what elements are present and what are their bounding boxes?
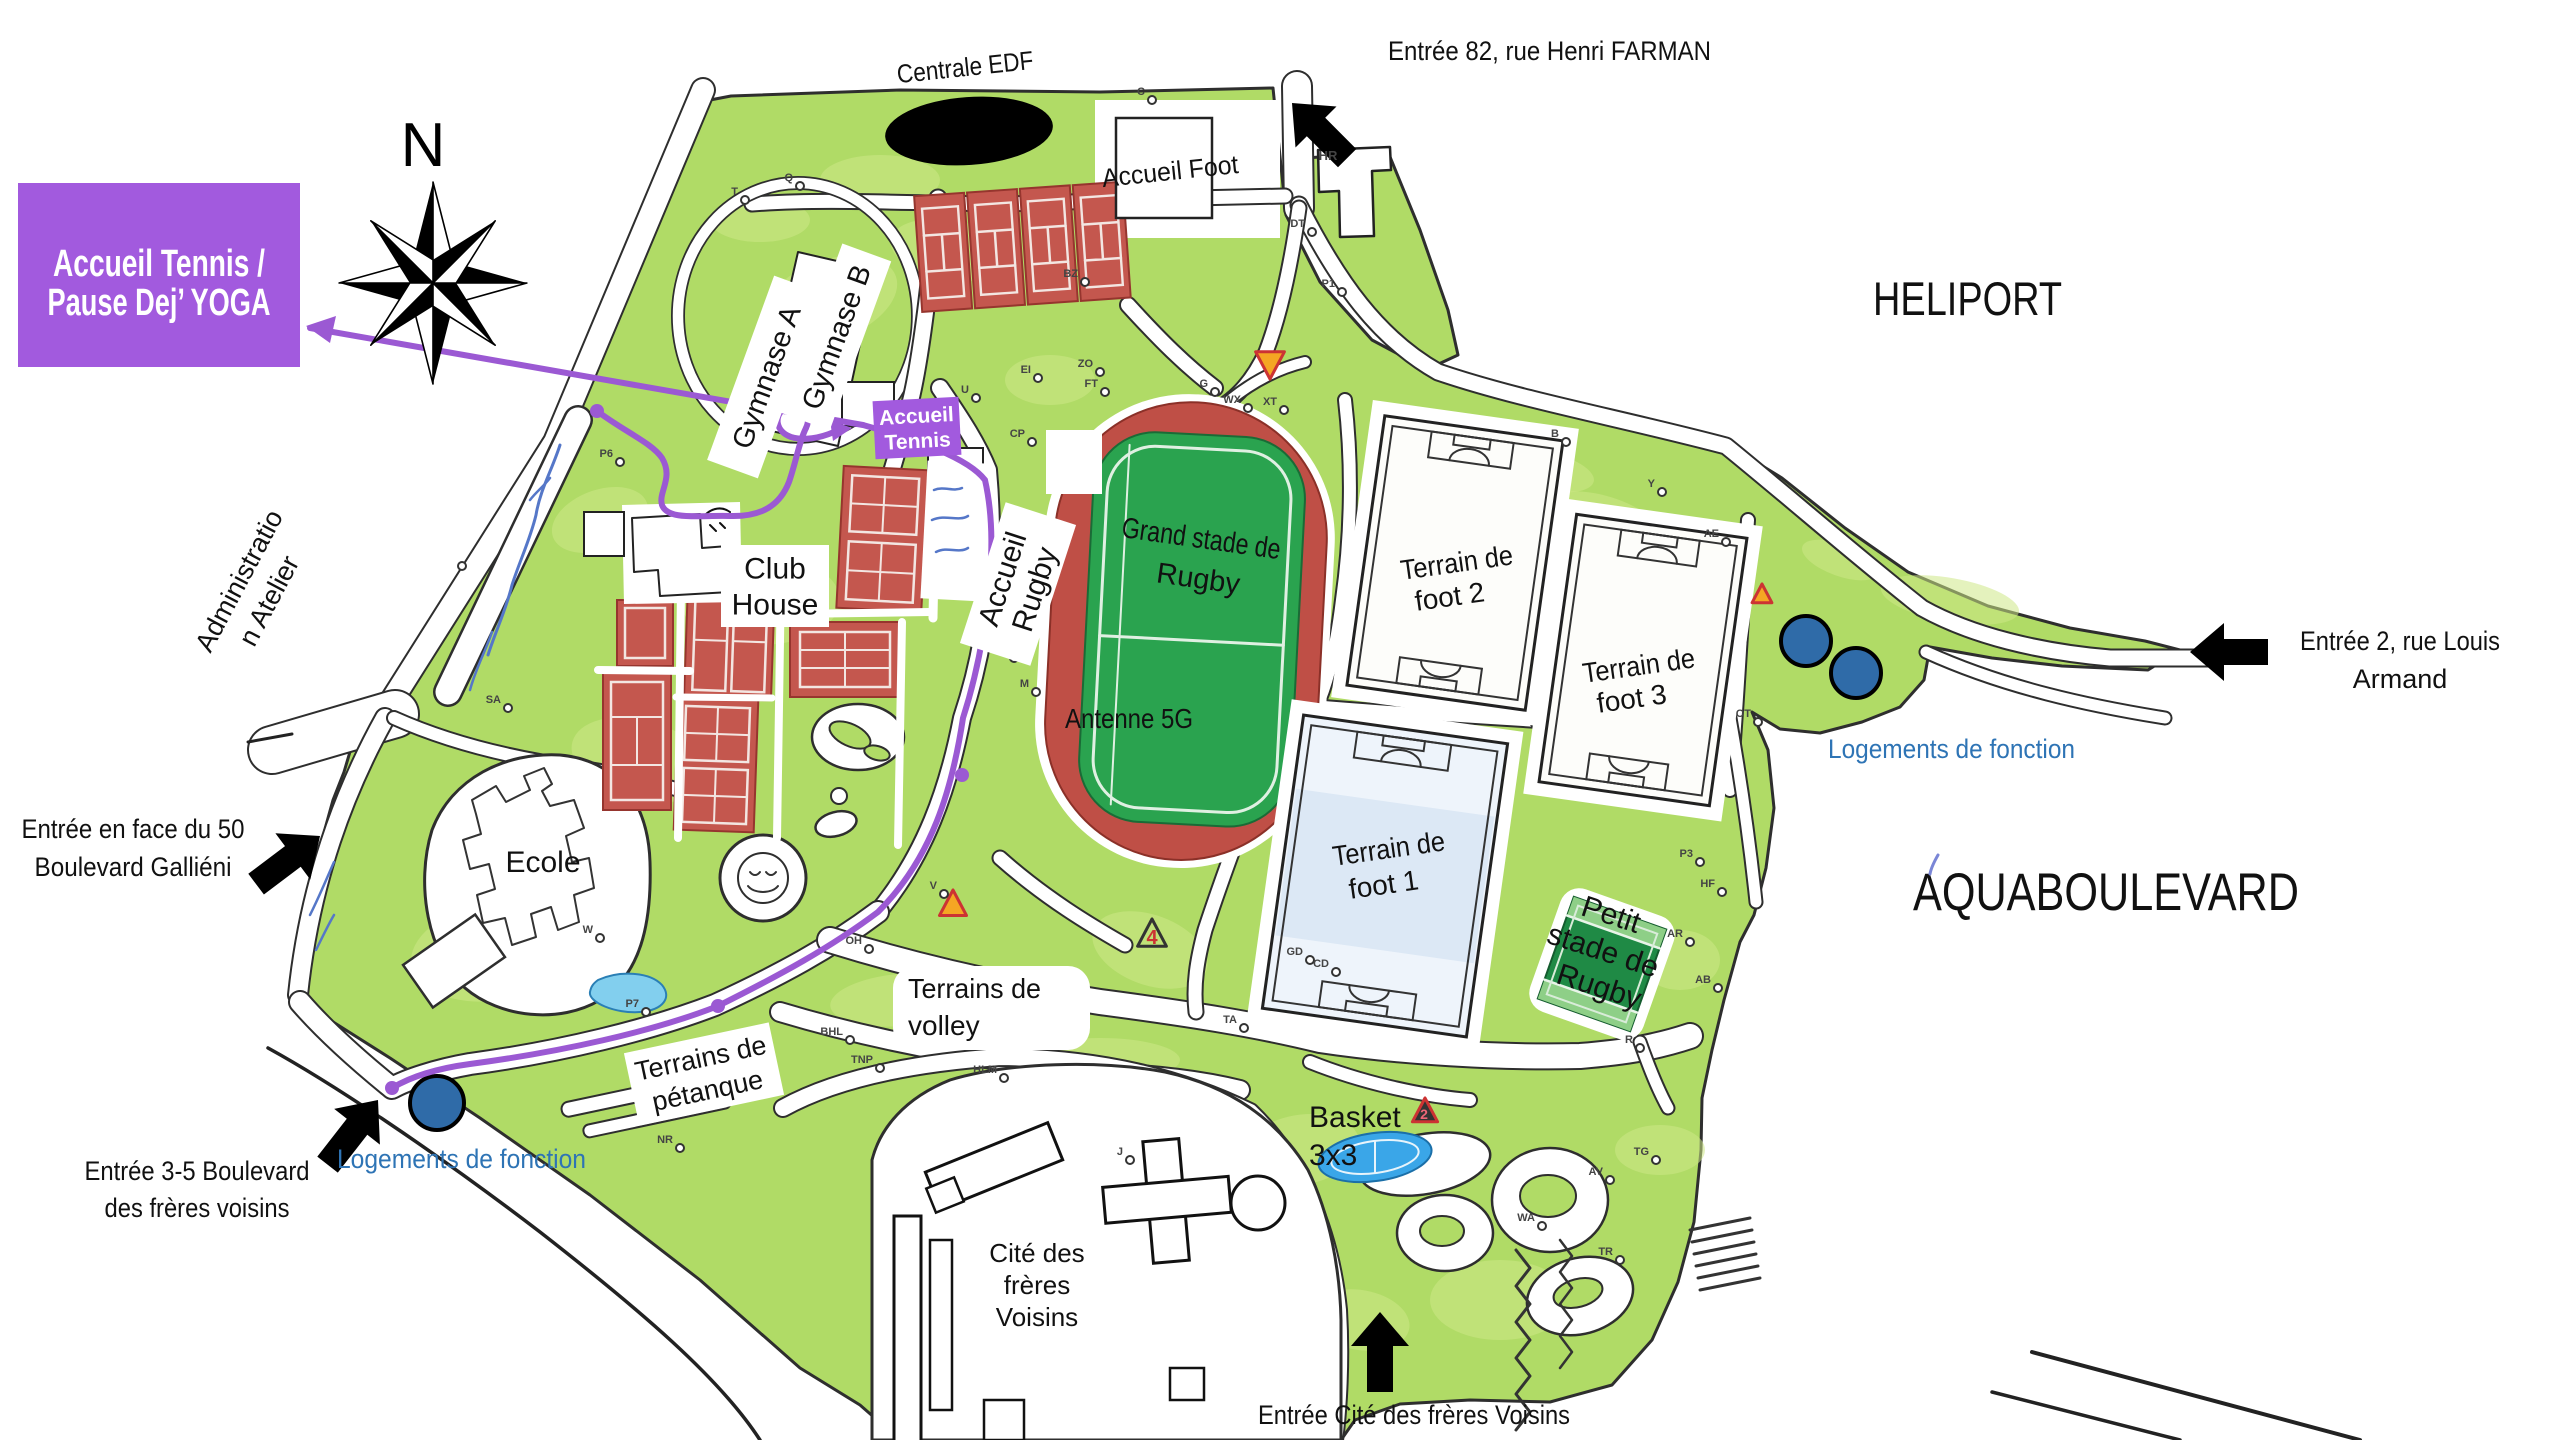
svg-text:Terrains de: Terrains de: [908, 973, 1041, 1004]
svg-text:AR: AR: [1667, 928, 1683, 940]
svg-text:U: U: [961, 384, 969, 396]
svg-text:Y: Y: [1648, 478, 1656, 490]
svg-text:Q: Q: [784, 172, 793, 184]
svg-text:R: R: [1625, 1034, 1633, 1046]
svg-text:CP: CP: [1010, 428, 1025, 440]
svg-text:TNP: TNP: [851, 1054, 873, 1066]
svg-text:P1: P1: [1322, 278, 1335, 290]
svg-text:Logements de fonction: Logements de fonction: [337, 1144, 586, 1174]
svg-text:Tennis: Tennis: [884, 428, 951, 454]
svg-text:Entrée 3-5 Boulevard: Entrée 3-5 Boulevard: [85, 1156, 310, 1186]
svg-text:volley: volley: [908, 1010, 980, 1041]
svg-text:House: House: [732, 589, 819, 622]
svg-text:AE: AE: [1704, 528, 1719, 540]
svg-text:Boulevard Galliéni: Boulevard Galliéni: [35, 852, 232, 882]
svg-text:TA: TA: [1223, 1014, 1237, 1026]
svg-text:Accueil Tennis /: Accueil Tennis /: [53, 243, 265, 285]
svg-text:TR: TR: [1598, 1246, 1613, 1258]
svg-text:Logements de fonction: Logements de fonction: [1828, 734, 2075, 764]
svg-text:AQUABOULEVARD: AQUABOULEVARD: [1913, 863, 2299, 922]
svg-text:TG: TG: [1634, 1146, 1649, 1158]
svg-text:Entrée en face du 50: Entrée en face du 50: [22, 814, 245, 844]
svg-text:WA: WA: [1517, 1212, 1535, 1224]
svg-text:4: 4: [1146, 927, 1158, 949]
svg-text:Armand: Armand: [2353, 664, 2448, 694]
svg-text:NR: NR: [657, 1134, 673, 1146]
svg-text:B: B: [1551, 428, 1559, 440]
svg-text:BZ: BZ: [1063, 268, 1078, 280]
svg-text:Ecole: Ecole: [505, 846, 580, 879]
svg-text:Entrée Cité des frères Voisins: Entrée Cité des frères Voisins: [1258, 1400, 1570, 1430]
svg-text:V: V: [930, 880, 938, 892]
svg-text:AV: AV: [1589, 1166, 1604, 1178]
svg-text:HR: HR: [1319, 148, 1338, 163]
svg-text:T: T: [731, 186, 738, 198]
svg-text:WX: WX: [1223, 394, 1241, 406]
svg-text:2: 2: [1420, 1106, 1428, 1122]
svg-text:GD: GD: [1287, 946, 1304, 958]
svg-text:Accueil: Accueil: [878, 403, 954, 430]
svg-text:Cité des: Cité des: [989, 1238, 1084, 1268]
svg-text:FT: FT: [1085, 378, 1099, 390]
svg-text:des frères voisins: des frères voisins: [105, 1193, 290, 1223]
svg-text:AB: AB: [1695, 974, 1711, 986]
svg-text:XT: XT: [1263, 396, 1277, 408]
svg-text:3x3: 3x3: [1309, 1139, 1357, 1172]
svg-text:HLM: HLM: [973, 1064, 997, 1076]
svg-text:Pause Dej’ YOGA: Pause Dej’ YOGA: [48, 282, 271, 324]
svg-text:HELIPORT: HELIPORT: [1873, 272, 2062, 325]
svg-text:OT: OT: [1736, 708, 1752, 720]
svg-text:EI: EI: [1021, 364, 1031, 376]
svg-text:Club: Club: [744, 553, 806, 586]
svg-text:CD: CD: [1313, 958, 1329, 970]
svg-text:DT: DT: [1290, 218, 1305, 230]
svg-text:Entrée 82, rue Henri FARMAN: Entrée 82, rue Henri FARMAN: [1388, 36, 1711, 66]
svg-text:ZO: ZO: [1078, 358, 1094, 370]
svg-text:G: G: [1199, 378, 1208, 390]
svg-text:BHL: BHL: [820, 1026, 843, 1038]
svg-text:Antenne 5G: Antenne 5G: [1065, 703, 1193, 734]
svg-text:J: J: [1117, 1146, 1123, 1158]
svg-text:Basket: Basket: [1309, 1101, 1401, 1134]
svg-text:SA: SA: [486, 694, 501, 706]
svg-text:N: N: [401, 111, 446, 180]
svg-text:Entrée 2, rue Louis: Entrée 2, rue Louis: [2300, 626, 2500, 656]
svg-text:P6: P6: [600, 448, 613, 460]
svg-text:Voisins: Voisins: [996, 1302, 1078, 1332]
svg-text:W: W: [583, 924, 594, 936]
svg-text:M: M: [1020, 678, 1029, 690]
svg-text:P7: P7: [626, 998, 639, 1010]
svg-text:P3: P3: [1680, 848, 1693, 860]
svg-text:HF: HF: [1700, 878, 1715, 890]
svg-text:C: C: [1137, 86, 1145, 98]
svg-text:frères: frères: [1004, 1270, 1070, 1300]
